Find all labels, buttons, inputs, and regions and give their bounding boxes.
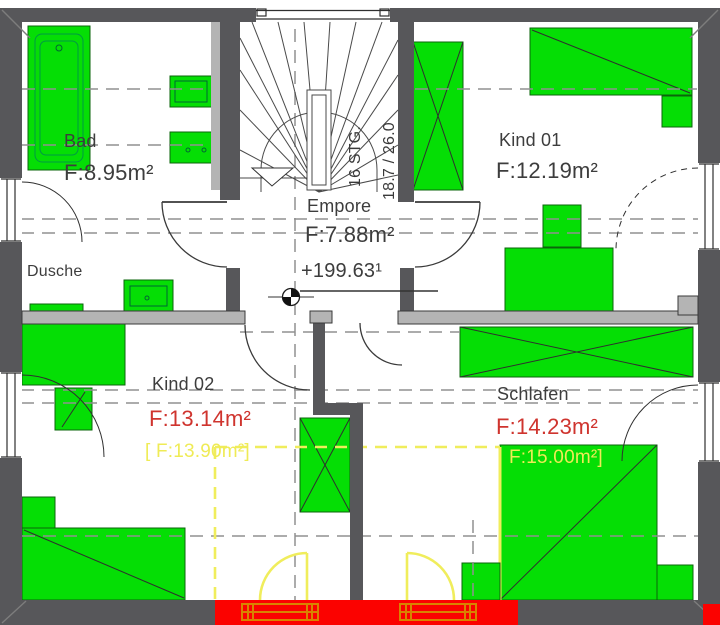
washbasin — [170, 76, 212, 107]
nightstand — [657, 565, 693, 600]
area-label-kind01: F:12.19m² — [496, 158, 598, 184]
room-label-empore: Empore — [307, 196, 371, 217]
window — [256, 8, 390, 22]
planned-door-arc — [260, 553, 307, 600]
area-label-kind02: F:13.14m² — [149, 406, 251, 432]
area-label-schlafen: F:14.23m² — [496, 414, 598, 440]
chair — [55, 388, 92, 430]
chair — [543, 205, 581, 247]
room-label-schlafen: Schlafen — [497, 384, 569, 405]
planned-door-arc — [407, 553, 454, 600]
stairs — [240, 22, 398, 192]
room-label-kind02: Kind 02 — [152, 374, 214, 395]
wardrobe — [300, 418, 350, 512]
area-label-empore: F:7.88m² — [305, 222, 395, 248]
desk — [22, 322, 125, 385]
door-arc — [415, 202, 480, 267]
shower-tray — [30, 304, 83, 311]
wardrobe — [460, 327, 693, 377]
planned-area-label-kind02: [ F:13.90m²] — [145, 441, 250, 463]
door-arc — [162, 202, 227, 267]
nightstand — [662, 96, 692, 127]
level-label: +199.63¹ — [301, 260, 382, 283]
door-arc — [245, 325, 310, 390]
area-label-bad: F:8.95m² — [64, 160, 154, 186]
stairs-steps-label: 16 STG. — [347, 126, 365, 187]
floor-plan-drawing — [0, 0, 720, 625]
nightstand — [22, 497, 55, 528]
stairs-riser-tread-label: 18.7 / 26.0 — [381, 122, 399, 200]
window — [616, 163, 720, 250]
washbasin — [170, 132, 212, 163]
dresser — [462, 563, 500, 600]
floor-plan: Bad F:8.95m² Dusche Empore F:7.88m² +199… — [0, 0, 720, 625]
room-label-dusche: Dusche — [27, 263, 82, 281]
room-label-kind01: Kind 01 — [499, 130, 561, 151]
bed — [22, 528, 185, 600]
stairs-down-arrow-icon — [252, 168, 293, 186]
wardrobe — [413, 42, 463, 190]
desk — [505, 248, 613, 314]
washbasin — [124, 280, 173, 311]
room-label-bad: Bad — [64, 131, 97, 152]
bed — [530, 28, 692, 95]
door-arc — [360, 323, 402, 365]
planned-area-label-schlafen: F:15.00m²] — [509, 447, 603, 469]
